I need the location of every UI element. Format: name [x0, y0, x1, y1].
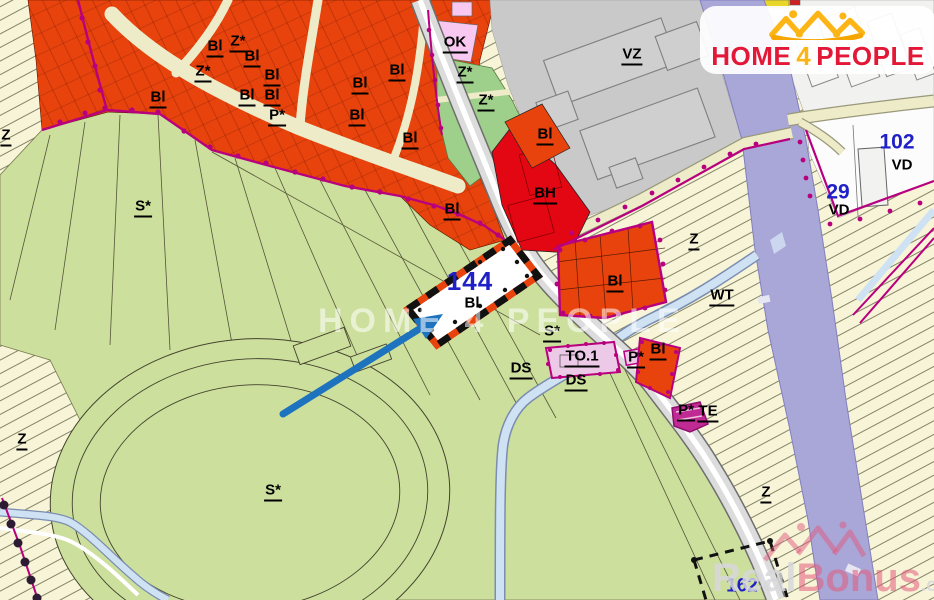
watermark-realbonus: RealBonus.cz [712, 556, 934, 600]
zoning-map-screenshot: ZS*BlBlZ*BlZ*BlBlBlP*BlBlBlBlOKZ*Z*VZBlB… [0, 0, 934, 600]
logo-home: HOME [711, 41, 791, 71]
logo-people: PEOPLE [816, 41, 924, 71]
logo-four: 4 [796, 41, 811, 71]
parcel-pink-small [452, 2, 472, 16]
watermark-cz: .cz [921, 575, 934, 596]
map-canvas [0, 0, 934, 600]
logo-crown-icon [760, 8, 876, 40]
logo-home4people: HOME4PEOPLE [700, 6, 934, 74]
parcel-to1 [546, 341, 620, 379]
watermark-bonus: Bonus [797, 556, 921, 600]
logo-text: HOME4PEOPLE [711, 41, 924, 72]
watermark-center: HOME 4 PEOPLE [318, 302, 687, 341]
watermark-real: Real [712, 556, 797, 600]
